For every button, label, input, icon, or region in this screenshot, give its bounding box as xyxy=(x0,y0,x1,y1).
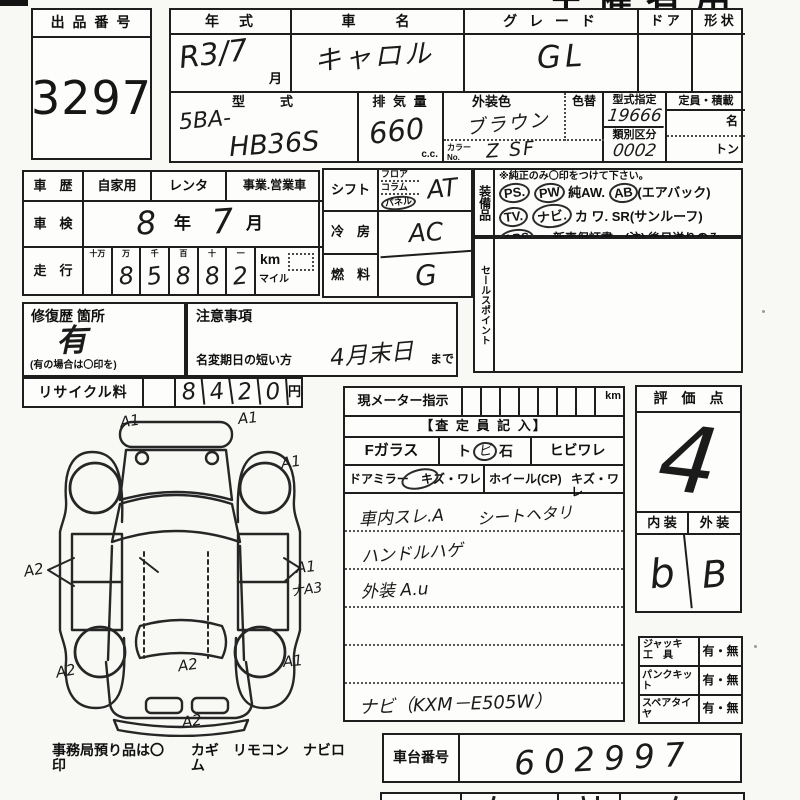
auction-sheet: 主催者用 出 品 番 号 3297 年 式 R3/7 月 車 名 キャロル グ … xyxy=(0,0,800,800)
type-designation-cell: 型式指定 19666 類別区分 0002 xyxy=(604,93,667,163)
recycle-digit: 0 xyxy=(259,378,289,407)
fglass-label: Fガラス xyxy=(345,438,440,464)
door-label: ド ア xyxy=(639,10,691,35)
note1a: 車内スレ.A xyxy=(359,508,445,529)
equip-ab: AB xyxy=(608,182,639,205)
color-no-label: カラーNo. xyxy=(447,143,475,162)
grade-value: GL xyxy=(536,41,587,75)
damage-mark: A1 xyxy=(119,413,141,431)
digit-value: 8 xyxy=(169,260,198,292)
capacity-cell: 定員・積載 名 トン xyxy=(667,93,745,163)
note-line xyxy=(345,608,623,646)
ac-value: AC xyxy=(378,209,475,258)
divider xyxy=(557,794,559,800)
damage-mark: A1 xyxy=(237,410,258,427)
caution-label: 注意事項 xyxy=(196,309,252,324)
color-change-label: 色替 xyxy=(572,95,596,108)
displacement-unit: c.c. xyxy=(421,149,438,160)
equip-pw: PW xyxy=(533,181,566,204)
interior-label: 内 装 xyxy=(637,513,689,535)
grade-cell: グ レ ー ド GL xyxy=(465,10,639,91)
grade-label: グ レ ー ド xyxy=(465,10,637,35)
meter-cell xyxy=(558,388,577,415)
recycle-row: リサイクル料 8 4 2 0 円 xyxy=(22,377,303,408)
recycle-label: リサイクル料 xyxy=(24,379,144,406)
mirror-circle-mark xyxy=(399,465,441,494)
stone-chip-label: トビ石 xyxy=(440,438,532,464)
deadline-value: 4月末日 xyxy=(329,340,414,370)
stone-t3: 石 xyxy=(499,441,513,461)
sales-point-vlabel-strip: セールスポイント xyxy=(473,237,495,373)
note-line: 車内スレ.A シートヘタリ xyxy=(345,494,623,532)
wheel-label: ホイール(CP) xyxy=(489,473,562,486)
digit-header: 万 xyxy=(113,248,140,261)
note2: ハンドルハゲ xyxy=(361,542,464,566)
meter-cell xyxy=(577,388,596,415)
evaluation-score: 4 xyxy=(654,412,723,510)
bottom-cutoff-table xyxy=(380,792,745,800)
color-change-divider xyxy=(564,93,566,141)
exterior-value: B xyxy=(686,535,743,613)
notes-area: 車内スレ.A シートヘタリ ハンドルハゲ 外装 A.u ナビ（KXM－E505W… xyxy=(345,494,623,720)
sales-point-box xyxy=(493,237,743,373)
lot-label: 出 品 番 号 xyxy=(33,10,150,38)
km-label: km xyxy=(260,252,280,267)
recycle-digit: 8 xyxy=(175,378,206,408)
year-cell: 年 式 R3/7 月 xyxy=(171,10,292,91)
history-label: 車 歴 xyxy=(24,172,82,200)
damage-mark: A1 xyxy=(282,653,303,670)
deadline-label: 名変期日の短い方 xyxy=(196,354,292,367)
chassis-row: 車台番号 602997 xyxy=(382,733,742,783)
recycle-digit: 4 xyxy=(202,377,233,408)
equipment-vlabel-strip: 装備品 xyxy=(473,168,495,237)
meter-cell xyxy=(482,388,501,415)
ink-mark xyxy=(596,796,599,800)
damage-mark: A2 xyxy=(23,561,45,579)
capacity-label: 定員・積載 xyxy=(667,93,745,111)
recycle-blank-cell xyxy=(144,379,176,406)
meter-label: 現メーター指示 xyxy=(345,388,463,415)
mile-label: マイル xyxy=(259,274,289,285)
mirror-label: ドアミラー xyxy=(349,473,409,486)
shift-value-cell: フロア コラム パネル AT xyxy=(379,170,473,212)
spare-value: 有・無 xyxy=(700,696,741,722)
equip-leather: カ ワ. xyxy=(575,209,608,224)
stone-t2-circled: ビ xyxy=(472,440,498,461)
meter-cell xyxy=(539,388,558,415)
evaluation-box: 評 価 点 4 内 装 外 装 b B xyxy=(635,385,742,613)
type-designation-value: 19666 xyxy=(603,107,667,128)
shift-option-column: コラム xyxy=(381,183,419,195)
appraiser-header: 【査 定 員 記 入】 xyxy=(345,417,623,438)
capacity-divider xyxy=(667,135,745,137)
crack-label: ヒビワレ xyxy=(532,438,623,464)
equipment-box: ※純正のみ〇印をつけて下さい。 PS. PW 純AW. AB(エアバック) TV… xyxy=(493,168,743,237)
damage-mark: A1 xyxy=(280,454,302,472)
meter-cell xyxy=(463,388,482,415)
jack-label2: 工 具 xyxy=(643,650,695,661)
note-line: ナビ（KXM－E505W） xyxy=(345,684,623,720)
damage-mark: A2 xyxy=(177,657,199,675)
equip-navi: ナビ. xyxy=(531,202,573,230)
meter-unit: km xyxy=(596,388,623,415)
class-label: 類別区分 xyxy=(604,128,665,142)
shift-label: シフト xyxy=(324,170,379,212)
puncture-label: パンクキット xyxy=(640,667,700,696)
damage-mark: A2 xyxy=(181,713,203,731)
ac-label: 冷 房 xyxy=(324,212,379,255)
exterior-label: 外 装 xyxy=(689,513,740,535)
history-table: 車 歴 自家用 レンタ 事業.営業車 車 検 8 年 7 月 走 行 十万 万 … xyxy=(22,170,320,296)
controls-table: シフト フロア コラム パネル AT 冷 房 AC 燃 料 G xyxy=(322,168,473,298)
model-cell: 型 式 5BA- HB36S xyxy=(171,93,359,163)
inspection-label: 車 検 xyxy=(24,202,84,248)
digit-value: 2 xyxy=(226,260,255,292)
history-private: 自家用 xyxy=(84,172,152,202)
digit-header: 百 xyxy=(170,248,197,261)
meter-row: 現メーター指示 km xyxy=(345,388,623,417)
ink-mark xyxy=(491,796,495,800)
jack-label: ジャッキ xyxy=(643,639,695,650)
mirror-cell: ドアミラー キズ・ワレ xyxy=(345,466,485,492)
note-line: ハンドルハゲ xyxy=(345,532,623,570)
displacement-cell: 排 気 量 660 c.c. xyxy=(359,93,444,163)
equip-ab-note: (エアバック) xyxy=(637,185,710,200)
year-label: 年 式 xyxy=(171,10,290,35)
equipment-line1: PS. PW 純AW. AB(エアバック) xyxy=(499,183,737,203)
shape-label: 形 状 xyxy=(693,10,745,35)
inspection-year-unit: 年 xyxy=(174,215,191,234)
year-value: R3/7 xyxy=(177,36,249,74)
recycle-unit: 円 xyxy=(288,379,301,406)
equip-tv: TV. xyxy=(498,206,529,229)
spare-label: スペアタイヤ xyxy=(640,696,700,722)
vehicle-table: 年 式 R3/7 月 車 名 キャロル グ レ ー ド GL ド ア 形 状 型… xyxy=(169,8,743,163)
type-designation-label: 型式指定 xyxy=(604,93,665,107)
equip-aw: 純AW. xyxy=(568,185,605,200)
digit-value: 8 xyxy=(111,260,140,292)
meter-cell xyxy=(501,388,520,415)
digit-header: 十万 xyxy=(84,248,111,261)
note-line xyxy=(345,646,623,684)
ink-mark xyxy=(581,796,585,800)
shift-option-panel: パネル xyxy=(381,196,416,210)
diagram-footer: 事務局預り品は〇印 カギ リモコン ナビロム xyxy=(52,743,352,774)
car-outline-drawing xyxy=(40,412,320,737)
color-no-value: Z SF xyxy=(485,139,536,161)
meter-cell xyxy=(520,388,539,415)
deposit-items-list: カギ リモコン ナビロム xyxy=(191,743,352,774)
history-commercial: 事業.営業車 xyxy=(227,172,322,202)
mileage-col: 千 5 xyxy=(141,248,170,294)
fuel-label: 燃 料 xyxy=(324,255,379,296)
digit-value: 5 xyxy=(139,259,170,292)
color-cell: 外装色 色替 ブラウン カラーNo. Z SF xyxy=(444,93,604,163)
fuel-value: G xyxy=(377,251,474,300)
divider xyxy=(619,794,621,800)
name-cell: 車 名 キャロル xyxy=(292,10,465,91)
color-value: ブラウン xyxy=(465,111,551,139)
chassis-label: 車台番号 xyxy=(384,735,460,781)
caution-box: 注意事項 名変期日の短い方 4月末日 まで xyxy=(186,302,458,377)
jack-value: 有・無 xyxy=(700,638,741,667)
equip-sunroof: SR(サンルーフ) xyxy=(612,209,703,224)
inspection-month: 7 xyxy=(211,204,235,239)
inspector-panel: 現メーター指示 km 【査 定 員 記 入】 Fガラス トビ石 ヒビワレ ドアミ… xyxy=(343,386,625,722)
scan-artifact xyxy=(0,0,28,6)
note3: 外装 A.u xyxy=(361,581,429,602)
ink-mark xyxy=(673,796,678,800)
accessories-box: ジャッキ 工 具 有・無 パンクキット 有・無 スペアタイヤ 有・無 xyxy=(638,636,743,724)
mileage-col: 一 2 xyxy=(227,248,256,294)
note1b: シートヘタリ xyxy=(477,505,574,528)
capacity-load-unit: トン xyxy=(715,143,739,156)
sales-point-vlabel: セールスポイント xyxy=(475,239,493,371)
repair-box: 修復歴 箇所 有 (有の場合は〇印を) xyxy=(22,302,186,377)
year-unit: 月 xyxy=(269,72,282,86)
class-value: 0002 xyxy=(603,142,667,161)
chassis-value: 602997 xyxy=(513,737,694,779)
model-prefix: 5BA- xyxy=(178,108,232,134)
mileage-col: 百 8 xyxy=(170,248,199,294)
capacity-persons-unit: 名 xyxy=(726,115,738,128)
repair-value: 有 xyxy=(55,325,87,357)
displacement-label: 排 気 量 xyxy=(359,93,442,111)
divider xyxy=(460,794,462,800)
equip-ps: PS. xyxy=(498,181,531,204)
puncture-value: 有・無 xyxy=(700,667,741,696)
mileage-col: 万 8 xyxy=(113,248,142,294)
name-value: キャロル xyxy=(313,40,435,75)
scan-speck xyxy=(762,310,765,313)
inspection-year: 8 xyxy=(135,206,158,240)
wheel-cell: ホイール(CP) キズ・ワレ xyxy=(485,466,623,492)
history-label-cell: 車 歴 xyxy=(24,172,84,202)
damage-mark: A2 xyxy=(55,662,77,680)
equipment-vlabel: 装備品 xyxy=(475,170,493,235)
mile-checkbox xyxy=(288,253,314,271)
lot-box: 出 品 番 号 3297 xyxy=(31,8,152,160)
stone-t1: ト xyxy=(457,441,471,461)
mileage-label: 走 行 xyxy=(24,248,84,294)
deadline-suffix: まで xyxy=(430,353,454,366)
shift-option-floor: フロア xyxy=(381,170,419,182)
shift-option-panel-circled: パネル xyxy=(380,194,416,211)
repair-note: (有の場合は〇印を) xyxy=(30,360,117,371)
damage-mark: A1 xyxy=(295,559,316,576)
shift-value: AT xyxy=(426,174,459,202)
history-rental: レンタ xyxy=(152,172,227,202)
mileage-grid: 十万 万 8 千 5 百 8 十 8 一 2 xyxy=(84,248,256,294)
interior-value: b xyxy=(633,534,692,613)
digit-value: 8 xyxy=(197,259,227,292)
model-code: HB36S xyxy=(228,128,320,161)
equipment-line2: TV. ナビ. カ ワ. SR(サンルーフ) xyxy=(499,204,737,228)
lot-number: 3297 xyxy=(33,38,150,158)
glass-row: Fガラス トビ石 ヒビワレ xyxy=(345,438,623,466)
jack-label-cell: ジャッキ 工 具 xyxy=(640,638,700,667)
repair-label: 修復歴 箇所 xyxy=(31,309,105,324)
scan-speck xyxy=(754,645,757,648)
car-diagram xyxy=(40,412,320,737)
digit-value xyxy=(84,261,111,291)
deposit-items-label: 事務局預り品は〇印 xyxy=(52,743,173,774)
color-label: 外装色 xyxy=(472,95,511,109)
mileage-col: 十万 xyxy=(84,248,113,294)
inspection-month-unit: 月 xyxy=(246,215,263,234)
displacement-value: 660 xyxy=(368,114,426,149)
equipment-note: ※純正のみ〇印をつけて下さい。 xyxy=(499,171,737,182)
name-label: 車 名 xyxy=(292,10,463,35)
door-cell: ド ア xyxy=(639,10,693,91)
inspection-value-cell: 8 年 7 月 xyxy=(84,202,322,248)
mileage-col: 十 8 xyxy=(199,248,228,294)
mirror-wheel-row: ドアミラー キズ・ワレ ホイール(CP) キズ・ワレ xyxy=(345,466,623,494)
shape-cell: 形 状 xyxy=(693,10,745,91)
note-line: 外装 A.u xyxy=(345,570,623,608)
note6: ナビ（KXM－E505W） xyxy=(359,693,553,718)
mileage-unit-cell: km マイル xyxy=(256,248,322,294)
recycle-digit: 2 xyxy=(231,378,262,408)
